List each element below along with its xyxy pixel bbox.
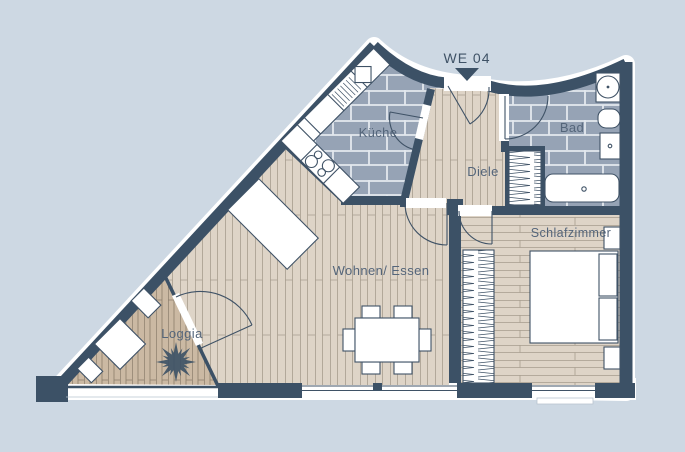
floor-plan-svg: WE 04 Küche Bad Diele Schlafzimmer Wohne… <box>0 0 685 452</box>
unit-label: WE 04 <box>443 50 490 66</box>
chair <box>343 329 355 351</box>
nightstand <box>604 347 620 369</box>
chair <box>394 306 412 318</box>
room-label-wohnen-essen: Wohnen/ Essen <box>333 263 430 278</box>
wardrobe-icon <box>463 250 494 383</box>
pillow <box>599 298 617 340</box>
pillow <box>599 254 617 296</box>
chair <box>394 362 412 374</box>
chair <box>419 329 431 351</box>
washbasin-drain <box>607 86 610 89</box>
sink-icon <box>355 67 371 83</box>
room-label-diele: Diele <box>467 164 499 179</box>
schlafzimmer-door-opening <box>458 205 492 216</box>
window-mullion <box>373 383 382 391</box>
bad-door-opening <box>499 94 509 141</box>
room-label-kueche: Küche <box>359 125 398 140</box>
floor-plan-canvas: WE 04 Küche Bad Diele Schlafzimmer Wohne… <box>0 0 685 452</box>
room-label-loggia: Loggia <box>161 326 203 341</box>
chair <box>362 306 380 318</box>
chair <box>362 362 380 374</box>
outer-wall-corner-block <box>36 376 68 402</box>
room-label-bad: Bad <box>560 120 584 135</box>
wall-kueche-wohnen <box>341 196 409 205</box>
wardrobe-icon <box>509 151 541 205</box>
toilet-icon <box>598 109 620 128</box>
bottom-wall-segment <box>595 383 635 398</box>
bottom-wall-segment <box>457 383 532 398</box>
window-sill <box>537 398 593 404</box>
wall-wohnen-schlafzimmer <box>449 207 461 383</box>
wohnen-door-opening <box>406 198 446 208</box>
sink-icon <box>600 133 620 159</box>
plant-icon <box>156 342 196 382</box>
bottom-wall-segment <box>218 383 302 398</box>
dining-table-icon <box>355 318 419 362</box>
room-label-schlafzimmer: Schlafzimmer <box>531 226 612 240</box>
